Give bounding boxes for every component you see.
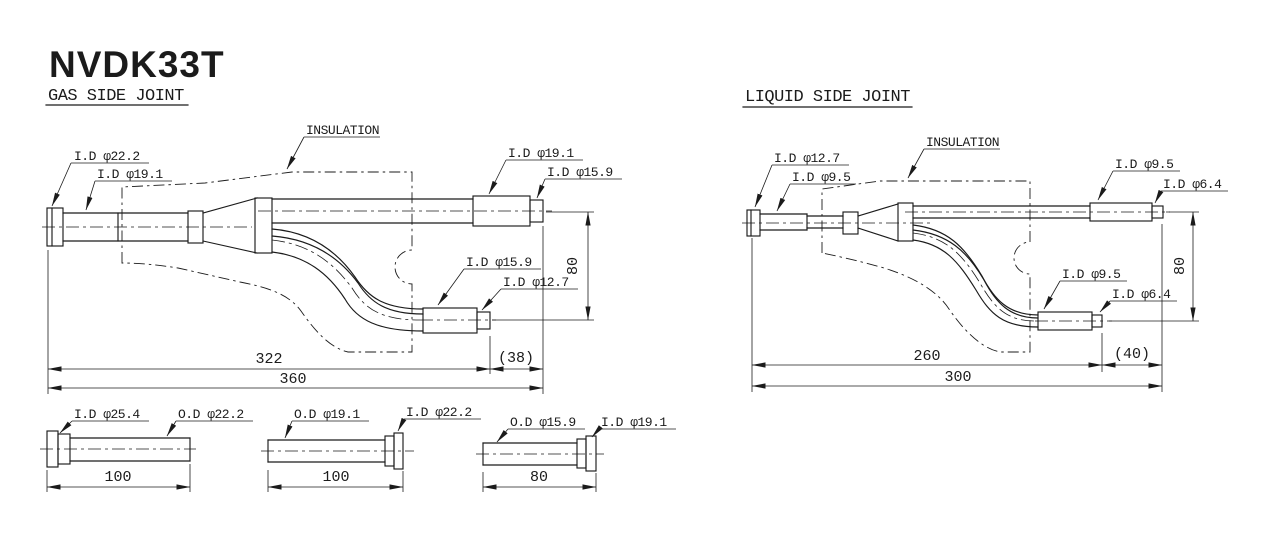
gas-label-outlet-bottom-outer: I.D φ15.9 xyxy=(466,255,532,270)
gas-reducer-cone xyxy=(203,198,257,253)
liquid-heading: LIQUID SIDE JOINT xyxy=(745,88,910,107)
gas-dim-stub: (38) xyxy=(498,350,534,367)
sleeve-1-label-a: I.D φ25.4 xyxy=(74,407,140,422)
sleeve-2: O.D φ19.1 I.D φ22.2 100 xyxy=(261,405,481,492)
liquid-label-outlet-bottom-inner: I.D φ6.4 xyxy=(1112,287,1171,302)
gas-dim-offset: 80 xyxy=(565,257,582,275)
gas-labels: I.D φ22.2 I.D φ19.1 INSULATION I.D φ19.1… xyxy=(52,123,622,310)
gas-label-outlet-bottom-inner: I.D φ12.7 xyxy=(503,275,569,290)
sleeve-1-label-b: O.D φ22.2 xyxy=(178,407,244,422)
sleeve-2-label-b: I.D φ22.2 xyxy=(406,405,472,420)
liquid-inlet-pipe xyxy=(760,214,843,230)
liquid-label-inlet-outer: I.D φ12.7 xyxy=(774,151,840,166)
liquid-branch-body xyxy=(898,203,913,241)
gas-dim-main: 322 xyxy=(255,351,282,368)
sleeve-1-tube xyxy=(70,438,190,461)
liquid-label-inlet-inner: I.D φ9.5 xyxy=(792,170,850,185)
sleeve-2-length: 100 xyxy=(322,469,349,486)
page-title: NVDK33T xyxy=(49,44,225,85)
sleeve-3-flange-inner xyxy=(577,439,586,468)
liquid-label-outlet-bottom-outer: I.D φ9.5 xyxy=(1062,267,1120,282)
sleeve-2-label-a: O.D φ19.1 xyxy=(294,407,360,422)
sleeve-1: I.D φ25.4 O.D φ22.2 100 xyxy=(40,407,253,492)
gas-insulation-label: INSULATION xyxy=(306,123,379,138)
gas-joint-drawing: 322 (38) 360 80 I.D φ22.2 I.D φ19.1 INSU… xyxy=(42,123,622,394)
gas-branch-body xyxy=(255,198,272,253)
sleeve-3-length: 80 xyxy=(530,469,548,486)
sleeve-3-label-b: I.D φ19.1 xyxy=(601,415,667,430)
drawing-canvas: NVDK33T GAS SIDE JOINT LIQUID SIDE JOINT xyxy=(0,0,1280,553)
sleeve-parts-row: I.D φ25.4 O.D φ22.2 100 O.D φ19.1 I xyxy=(40,405,676,492)
liquid-reducer-cone xyxy=(858,204,898,241)
gas-dim-overall: 360 xyxy=(279,371,306,388)
liquid-joint-drawing: 260 (40) 300 80 I.D φ12.7 I.D φ9.5 INSUL… xyxy=(742,135,1228,392)
gas-lower-stub xyxy=(477,312,490,329)
liquid-dimensions: 260 (40) 300 80 xyxy=(752,212,1199,392)
drawing-sheet: NVDK33T GAS SIDE JOINT LIQUID SIDE JOINT xyxy=(0,0,1280,553)
liquid-dim-main: 260 xyxy=(913,348,940,365)
gas-label-outlet-top-inner: I.D φ15.9 xyxy=(547,165,613,180)
sleeve-3-label-a: O.D φ15.9 xyxy=(510,415,576,430)
sleeve-3-flange-outer xyxy=(586,436,596,471)
gas-heading: GAS SIDE JOINT xyxy=(48,87,184,106)
gas-label-outlet-top-outer: I.D φ19.1 xyxy=(508,146,574,161)
liquid-insulation-outline xyxy=(822,181,1030,352)
sleeve-3: O.D φ15.9 I.D φ19.1 80 xyxy=(476,415,676,492)
liquid-label-outlet-top-inner: I.D φ6.4 xyxy=(1163,177,1222,192)
liquid-label-outlet-top-outer: I.D φ9.5 xyxy=(1115,157,1173,172)
liquid-labels: I.D φ12.7 I.D φ9.5 INSULATION I.D φ9.5 I… xyxy=(755,135,1228,312)
gas-label-inlet-inner: I.D φ19.1 xyxy=(97,167,163,182)
gas-lower-coupling xyxy=(423,308,477,333)
liquid-dim-overall: 300 xyxy=(944,369,971,386)
sleeve-1-length: 100 xyxy=(104,469,131,486)
liquid-dim-offset: 80 xyxy=(1172,257,1189,275)
gas-lower-pipe xyxy=(272,229,423,331)
liquid-dim-stub: (40) xyxy=(1114,346,1150,363)
gas-label-inlet-outer: I.D φ22.2 xyxy=(74,149,140,164)
liquid-insulation-label: INSULATION xyxy=(926,135,999,150)
gas-dimensions: 322 (38) 360 80 xyxy=(48,212,594,394)
